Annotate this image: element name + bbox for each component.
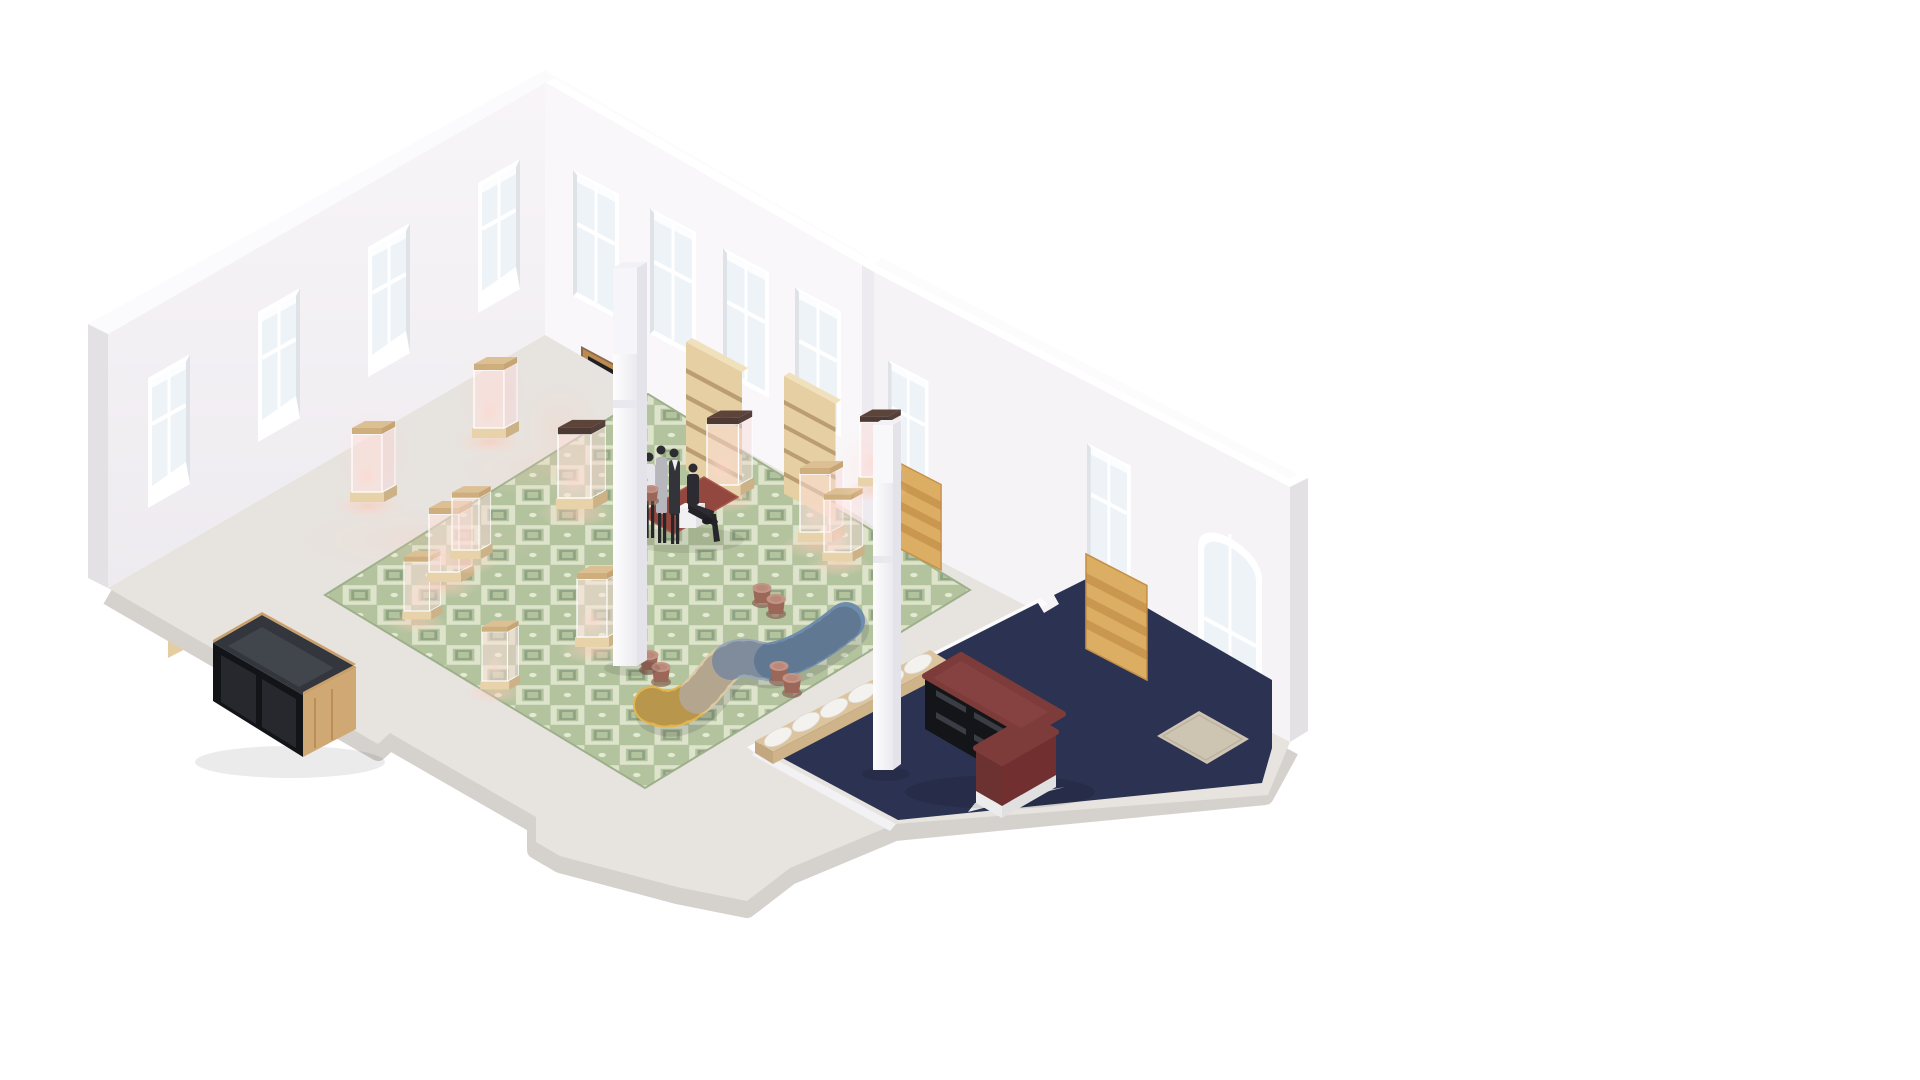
render-canvas [0, 0, 1920, 1080]
copper-stool [782, 673, 802, 698]
window-left-2 [258, 288, 300, 442]
window-left-4 [478, 159, 520, 313]
right-wall-cut-face [1290, 478, 1308, 742]
isometric-scene [0, 0, 1920, 1080]
window-back-1 [573, 170, 619, 320]
window-left-3 [368, 223, 410, 377]
copper-stool [766, 594, 786, 619]
window-left-1 [148, 354, 190, 508]
window-back-2 [650, 208, 696, 358]
left-wall-cut-face [88, 324, 108, 588]
handbag [702, 518, 712, 525]
